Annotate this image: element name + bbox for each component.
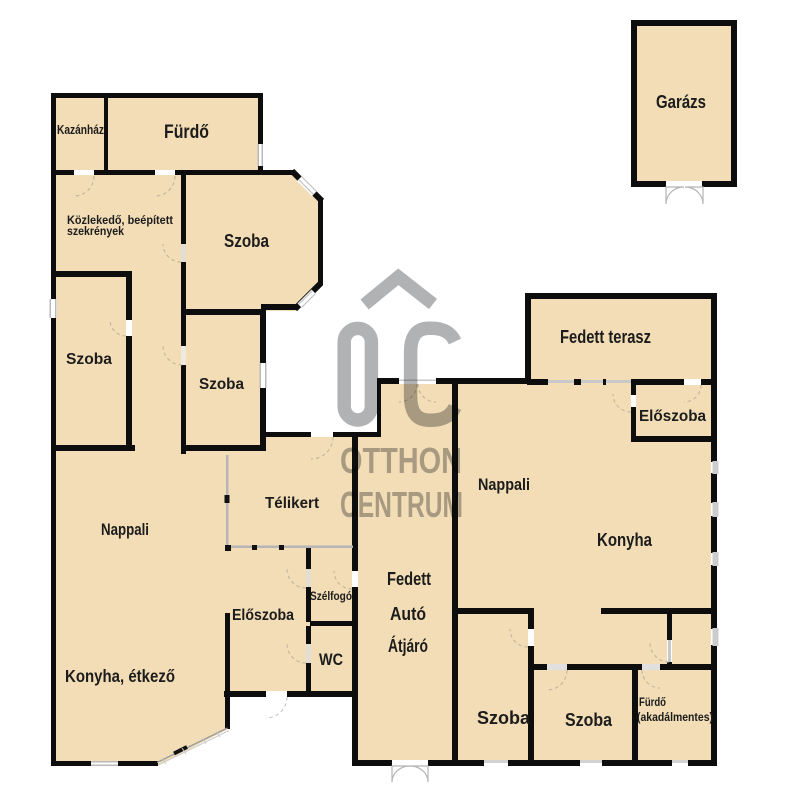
svg-text:szekrények: szekrények: [67, 224, 124, 238]
svg-text:Fürdő: Fürdő: [164, 122, 209, 143]
svg-text:Előszoba: Előszoba: [639, 408, 706, 425]
svg-text:Autó: Autó: [390, 603, 426, 624]
svg-text:Szoba: Szoba: [565, 710, 613, 730]
svg-text:Fedett: Fedett: [387, 568, 431, 589]
svg-text:Előszoba: Előszoba: [232, 607, 294, 624]
svg-text:Nappali: Nappali: [478, 476, 530, 494]
svg-text:Télikert: Télikert: [265, 495, 320, 512]
svg-text:OTTHON: OTTHON: [340, 440, 462, 481]
svg-text:(akadálmentes): (akadálmentes): [637, 712, 713, 724]
svg-text:Szoba: Szoba: [66, 351, 112, 368]
svg-text:Kazánház: Kazánház: [57, 123, 104, 137]
svg-text:Szoba: Szoba: [224, 231, 270, 251]
svg-text:CENTRUM: CENTRUM: [340, 484, 463, 525]
svg-text:Konyha, étkező: Konyha, étkező: [65, 666, 175, 686]
svg-text:Átjáró: Átjáró: [388, 635, 428, 656]
svg-text:Szoba: Szoba: [199, 376, 244, 393]
svg-text:Szoba: Szoba: [477, 708, 531, 728]
svg-text:Fedett terasz: Fedett terasz: [560, 327, 651, 347]
svg-text:Garázs: Garázs: [656, 91, 706, 112]
svg-text:Fürdő: Fürdő: [639, 697, 666, 709]
svg-text:Nappali: Nappali: [101, 521, 149, 539]
svg-text:Konyha: Konyha: [597, 530, 653, 550]
svg-text:Szélfogó: Szélfogó: [310, 591, 352, 603]
svg-text:WC: WC: [319, 650, 343, 669]
